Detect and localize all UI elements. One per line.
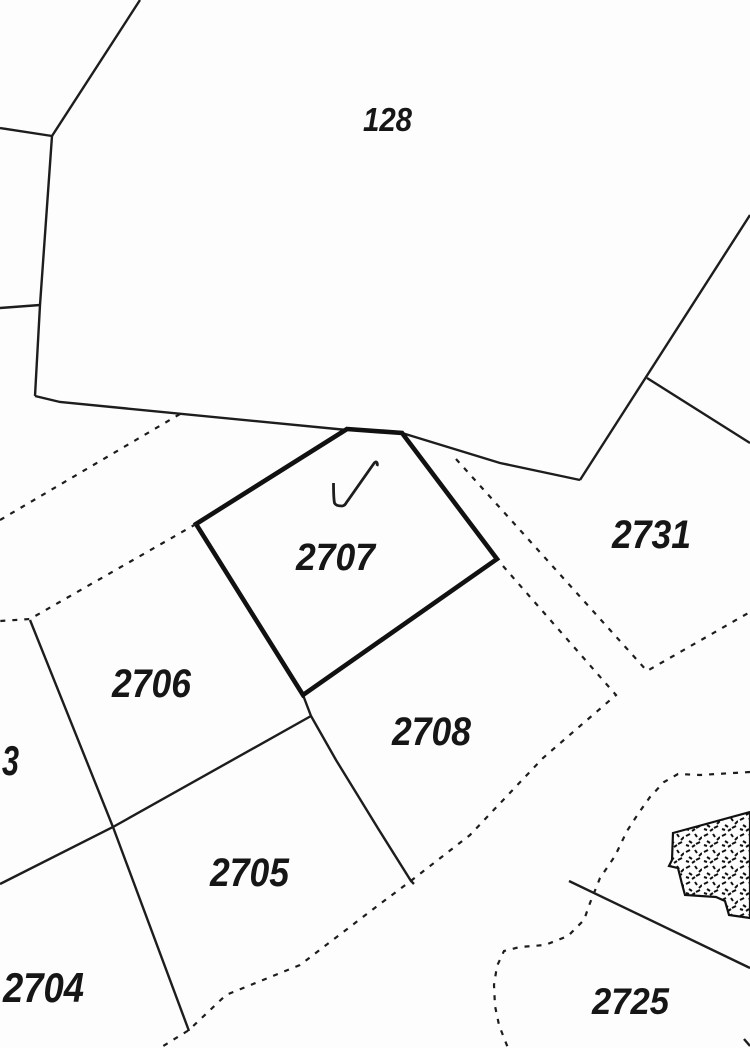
svg-text:2705: 2705 <box>209 851 290 895</box>
svg-text:2725: 2725 <box>591 981 670 1022</box>
svg-text:2707: 2707 <box>295 537 377 579</box>
svg-text:2706: 2706 <box>111 662 192 706</box>
svg-text:2704: 2704 <box>2 964 84 1011</box>
svg-text:3: 3 <box>2 737 19 784</box>
svg-text:2708: 2708 <box>391 710 472 754</box>
svg-text:2731: 2731 <box>611 513 691 557</box>
svg-text:128: 128 <box>363 101 413 138</box>
